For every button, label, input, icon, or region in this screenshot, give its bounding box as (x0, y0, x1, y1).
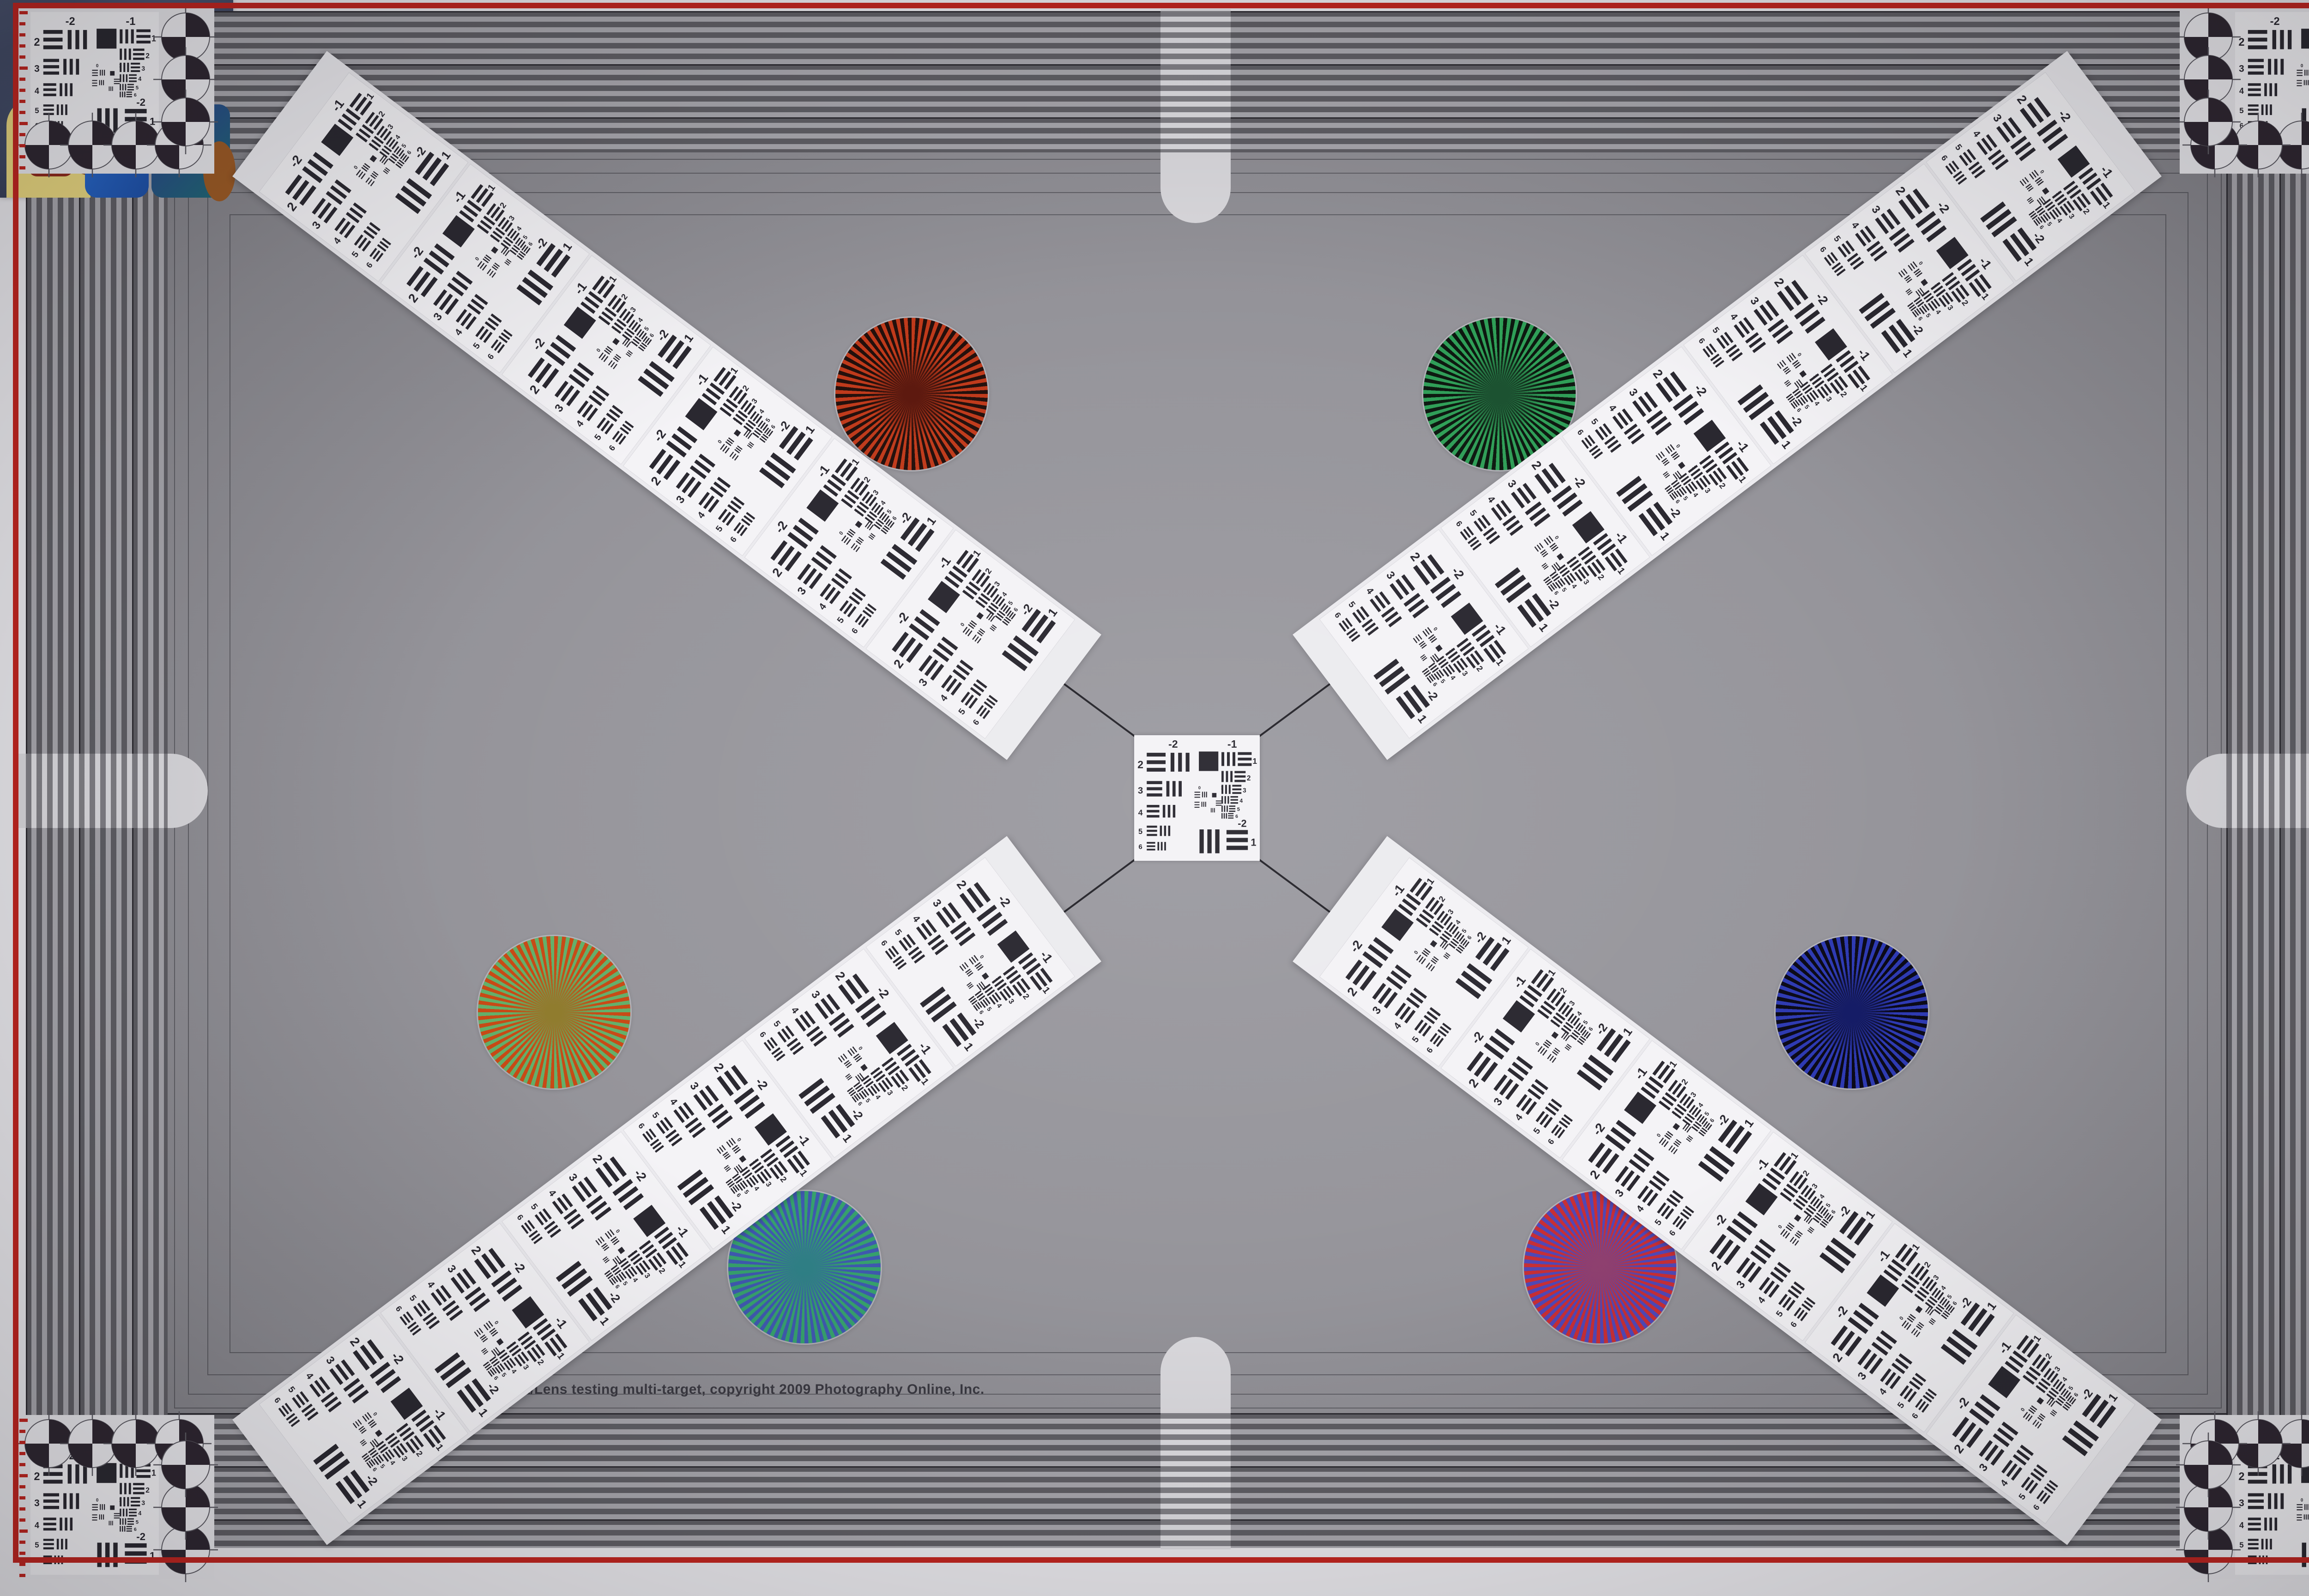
red-frame-border (13, 3, 2309, 1563)
red-comb-tick (19, 1574, 25, 1577)
red-comb-tick (19, 1563, 25, 1566)
test-chart-photograph: -2-12345612345601-21-2-12345612345601-21… (0, 0, 2309, 1596)
